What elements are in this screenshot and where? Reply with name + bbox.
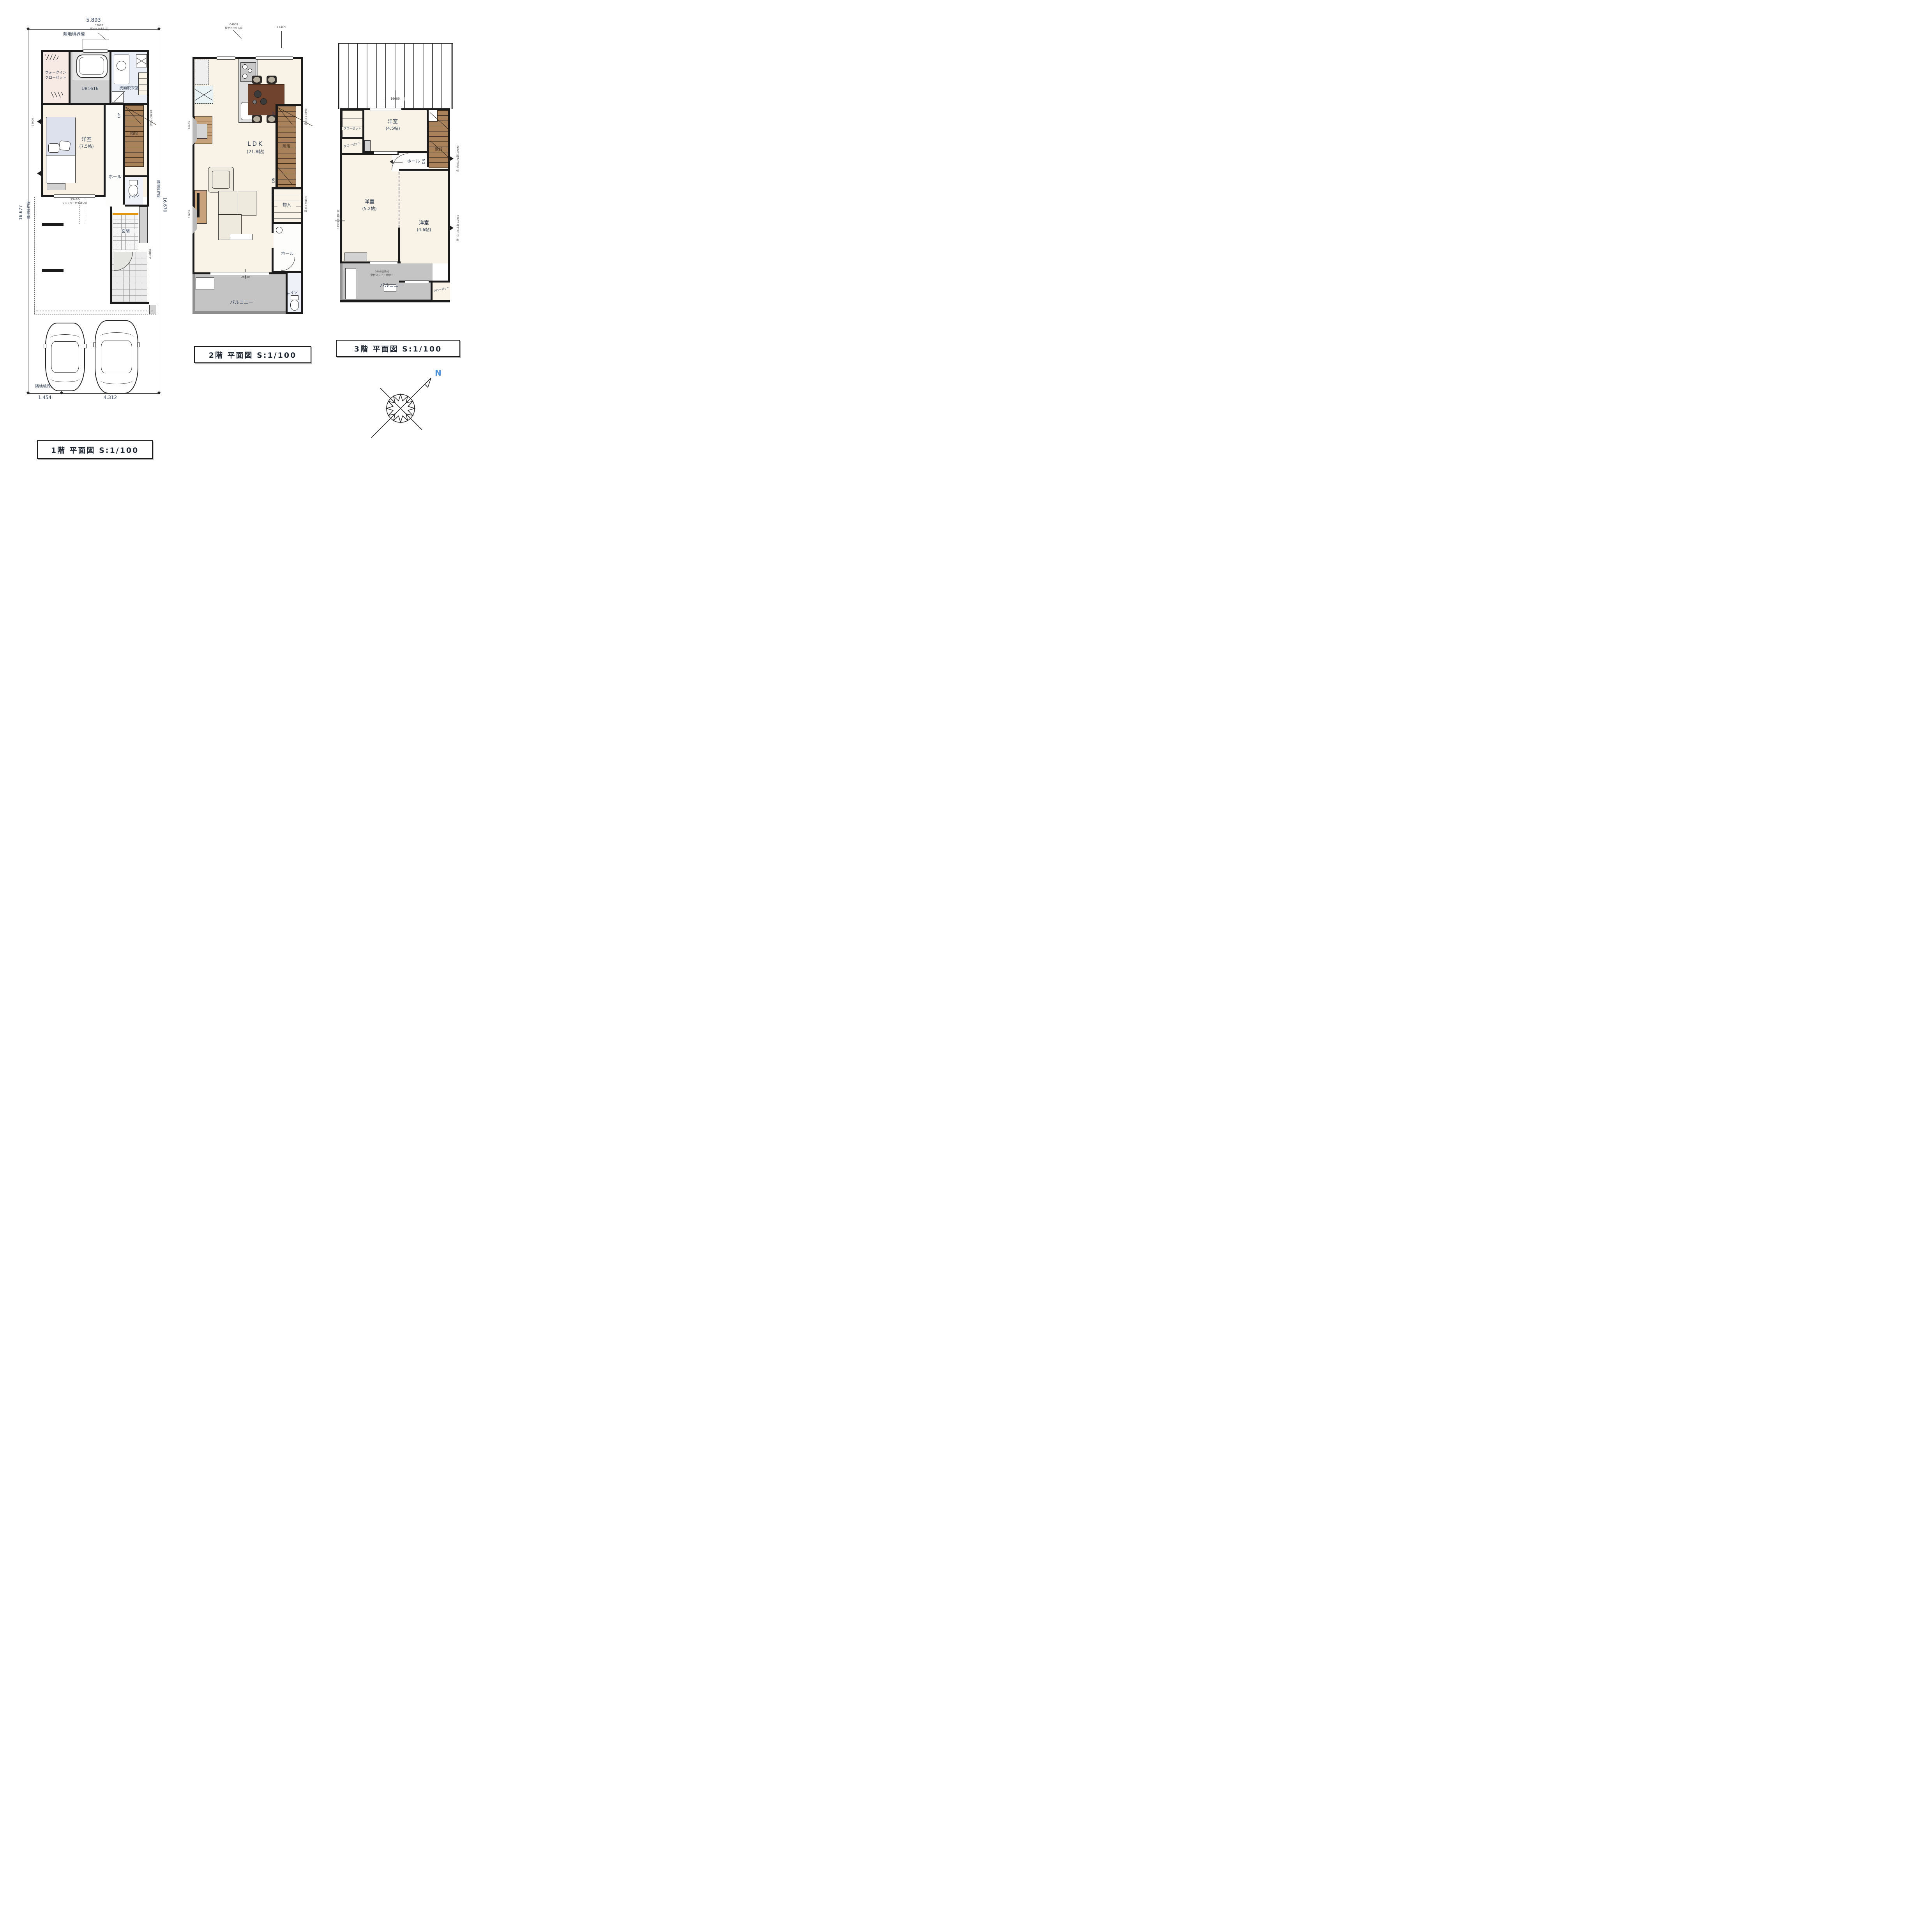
bay-window — [192, 206, 197, 234]
boundary-label-left: 隣地境界線 — [28, 195, 31, 226]
floor3-title-text: 3階 平面図 S:1/100 — [354, 343, 442, 354]
room52-size: (5.2帖) — [357, 207, 382, 211]
window-name: 縦すべり出し窓 — [221, 27, 246, 30]
hall1-label: ホール — [106, 175, 124, 179]
pillow — [58, 140, 71, 151]
balcony-box — [196, 277, 214, 290]
wall — [274, 187, 303, 189]
wall — [192, 57, 194, 274]
boundary-label-right: 隣地境界線 — [156, 173, 160, 205]
wall — [41, 50, 43, 197]
wall — [431, 281, 433, 300]
wall-stub — [42, 223, 64, 226]
dim-top-value: 5.893 — [70, 18, 117, 23]
bedroom-label: 洋室 — [76, 137, 97, 142]
wall — [448, 108, 450, 283]
window — [370, 261, 397, 264]
balcony-box — [345, 268, 356, 299]
floor2-panel: LDK (21.8帖) 階段 UP DN 物入 ホール トイレ バルコニー 25… — [179, 0, 320, 483]
window-name: 引違い窓 — [337, 210, 340, 220]
step-line — [113, 213, 138, 215]
dim-tick-line — [281, 31, 282, 48]
wall — [286, 273, 288, 314]
chair-seat — [253, 116, 260, 122]
wall — [69, 52, 71, 103]
stairs2 — [277, 106, 296, 196]
window-code: 06807 — [456, 215, 459, 223]
window — [370, 108, 401, 111]
sofa-table — [230, 234, 253, 240]
fridge-space — [195, 60, 209, 85]
driveway-dash — [34, 314, 156, 314]
chair-seat — [268, 77, 275, 83]
floor3-panel: 16609 クローゼット クローゼット 洋室 (4.5帖) 階段 ホール DN … — [320, 0, 483, 483]
floor1-panel: 5.893 隣地境界線 16.677 隣地境界線 隣地境界線 16.670 隣地… — [0, 0, 179, 483]
window-code: 16009 — [188, 117, 191, 134]
stairs1 — [125, 105, 144, 167]
compass-svg: N — [362, 362, 448, 452]
window — [217, 57, 235, 60]
window-name: 縦すべり出し窓 — [456, 224, 459, 241]
plate — [254, 90, 261, 98]
bay-window — [192, 117, 197, 145]
plate — [253, 100, 257, 104]
floor2-title-text: 2階 平面図 S:1/100 — [209, 350, 297, 360]
pillow — [48, 143, 59, 153]
room52-label: 洋室 — [358, 200, 380, 205]
wall — [41, 103, 149, 105]
window-label-left: 11909 引違い窓 — [337, 204, 340, 235]
window — [210, 272, 269, 275]
wall — [272, 187, 274, 233]
car-roof — [101, 341, 132, 374]
burner — [242, 74, 247, 79]
wall — [340, 137, 364, 139]
stairs3-label: 階段 — [430, 148, 447, 152]
wic-label-2: クローゼット — [44, 76, 68, 80]
window-code: 06807 — [456, 145, 459, 154]
fix-name: FIX窓 — [304, 118, 307, 125]
wall — [427, 110, 429, 167]
window-name: シャッター付引違い窓 — [55, 202, 94, 205]
casement-window-icon — [37, 171, 41, 176]
wall — [340, 108, 342, 263]
wall-stub — [42, 269, 64, 272]
window-code: 03607 — [90, 24, 108, 27]
dn-label: DN — [423, 157, 426, 166]
wall — [275, 104, 301, 106]
wall — [147, 50, 149, 207]
armchair-cushion — [212, 171, 230, 189]
fix-code: 06807 — [304, 196, 307, 204]
dim-b1-value: 1.454 — [27, 395, 62, 400]
shoe-cabinet — [139, 207, 148, 243]
driveway-dash — [79, 197, 80, 224]
wall — [274, 222, 303, 224]
washing-machine — [136, 54, 147, 67]
plate — [260, 98, 267, 105]
casement-window-icon — [449, 156, 454, 161]
car-mirror — [44, 344, 46, 348]
driveway-dash — [34, 197, 35, 314]
compass-north-text: N — [435, 368, 441, 378]
stairs2-label: 階段 — [278, 145, 295, 149]
floor-plan-sheet: 5.893 隣地境界線 16.677 隣地境界線 隣地境界線 16.670 隣地… — [0, 0, 483, 483]
fix-code: 06807 — [304, 108, 307, 117]
bathtub-inner — [79, 57, 104, 75]
hanger-mark — [50, 92, 63, 97]
boundary-label-top: 隣地境界線 — [49, 32, 99, 36]
ub-label: UB1616 — [78, 87, 102, 91]
floor2-title: 2階 平面図 S:1/100 — [194, 346, 311, 363]
car-mirror — [84, 344, 87, 348]
wic-label-1: ウォークイン — [44, 71, 68, 75]
balcony3-label: バルコニー — [376, 283, 407, 288]
window — [405, 280, 429, 283]
room46-label: 洋室 — [413, 221, 435, 226]
utility-box — [149, 305, 156, 314]
car — [45, 323, 85, 391]
window-code: 15420 — [63, 198, 87, 201]
storage-label: 物入 — [277, 203, 296, 207]
dim-tick-line — [335, 221, 345, 221]
closet1 — [342, 110, 363, 138]
window-bench — [344, 253, 367, 261]
balcony2-label: バルコニー — [226, 300, 257, 305]
wall — [301, 57, 303, 314]
ldk-label: LDK — [244, 141, 267, 147]
wall — [274, 271, 303, 273]
vanity-sink — [117, 61, 126, 71]
window — [256, 57, 293, 60]
window — [83, 49, 108, 53]
arrow-head — [390, 159, 393, 164]
fix-name: FIX窓 — [150, 120, 153, 127]
bedroom-size: (7.5帖) — [75, 144, 98, 148]
wall — [110, 207, 112, 304]
driveway-dot — [36, 311, 153, 311]
leader-line — [233, 30, 242, 39]
genkan-label: 玄関 — [116, 229, 135, 233]
window-code: 11909 — [337, 221, 340, 229]
wall — [398, 228, 400, 263]
wall — [123, 105, 125, 205]
fix-code: 06807 — [150, 110, 153, 118]
hand-basin — [276, 227, 283, 233]
movable-partition — [399, 172, 399, 228]
floor1-title: 1階 平面図 S:1/100 — [37, 440, 153, 459]
hall1 — [106, 105, 125, 207]
room45-label: 洋室 — [382, 119, 404, 124]
compass: N — [362, 362, 448, 452]
closet1-label: クローゼット — [341, 127, 363, 130]
window-label-right: 06807 縦すべり出し窓 — [456, 141, 459, 177]
ldk-size: (21.8帖) — [242, 150, 270, 154]
stairs1-label: 階段 — [125, 132, 143, 136]
driveway-dash — [86, 197, 86, 224]
window-code: 16009 — [188, 205, 191, 223]
wall — [104, 105, 106, 197]
pantry — [195, 86, 213, 104]
arrow-line — [392, 162, 403, 162]
wall — [275, 106, 277, 189]
window-code: 16009 — [32, 113, 34, 131]
hanger-mark — [45, 55, 58, 60]
toilet2-bowl — [290, 300, 299, 311]
wall — [109, 52, 111, 103]
wall — [362, 110, 364, 153]
wall — [399, 169, 450, 171]
linen-shelf — [138, 72, 148, 95]
dim-left-value: 16.677 — [19, 195, 23, 230]
room45-size: (4.5帖) — [380, 126, 405, 131]
window-name: 縦すべり出し窓 — [456, 154, 459, 172]
window-name: 縦すべり出し窓 — [87, 28, 111, 30]
window-code: 04609 — [225, 23, 242, 26]
entry-door-label: 玄関ドア — [148, 245, 151, 262]
hall2-label: ホール — [277, 251, 298, 256]
counter-stool — [196, 124, 207, 139]
wall — [286, 312, 303, 314]
window-label-right: 06807 縦すべり出し窓 — [456, 210, 459, 246]
sofa-cushion-line — [237, 192, 237, 214]
up-label: UP — [118, 111, 122, 120]
fix-window-label: 06807 FIX窓 — [304, 104, 307, 129]
car — [95, 320, 138, 394]
floor1-title-text: 1階 平面図 S:1/100 — [51, 445, 139, 455]
hall3-label: ホール — [404, 159, 422, 163]
fix-name: FIX窓 — [304, 205, 307, 212]
fix-window-label: 06807 FIX窓 — [304, 192, 307, 217]
fix-window-label: 06807 FIX窓 — [150, 106, 152, 131]
bench — [47, 183, 65, 190]
balcony-wall — [192, 311, 288, 314]
car-roof — [51, 341, 79, 372]
car-mirror — [137, 343, 140, 347]
laundry-note-2: 壁付スライド式物干 — [357, 274, 407, 277]
floor3-title: 3階 平面図 S:1/100 — [336, 340, 460, 357]
chair-seat — [253, 77, 260, 83]
burner — [242, 64, 247, 69]
dim-right-value: 16.670 — [163, 187, 167, 223]
window-code: 11409 — [273, 26, 290, 29]
window — [374, 151, 397, 154]
balcony-wall — [340, 263, 343, 302]
wall — [125, 175, 149, 177]
wall — [110, 302, 149, 304]
dim-b2-value: 4.312 — [93, 395, 128, 400]
burner — [248, 69, 252, 73]
blanket — [46, 155, 76, 183]
wall — [272, 248, 274, 274]
laundry-note-1: 0808格子付 — [358, 270, 405, 273]
balcony-wall — [192, 274, 195, 314]
dim-line-bottom — [28, 393, 159, 394]
car-rear-window — [100, 375, 133, 384]
casement-window-icon — [449, 225, 454, 231]
casement-window-icon — [37, 119, 41, 124]
wall — [340, 300, 450, 302]
window-main — [54, 194, 95, 198]
room46-size: (4.6帖) — [411, 228, 436, 232]
tv — [197, 193, 200, 217]
car-mirror — [93, 343, 96, 347]
car-rear-window — [50, 374, 80, 383]
washroom-label: 洗面脱衣室 — [112, 87, 146, 90]
